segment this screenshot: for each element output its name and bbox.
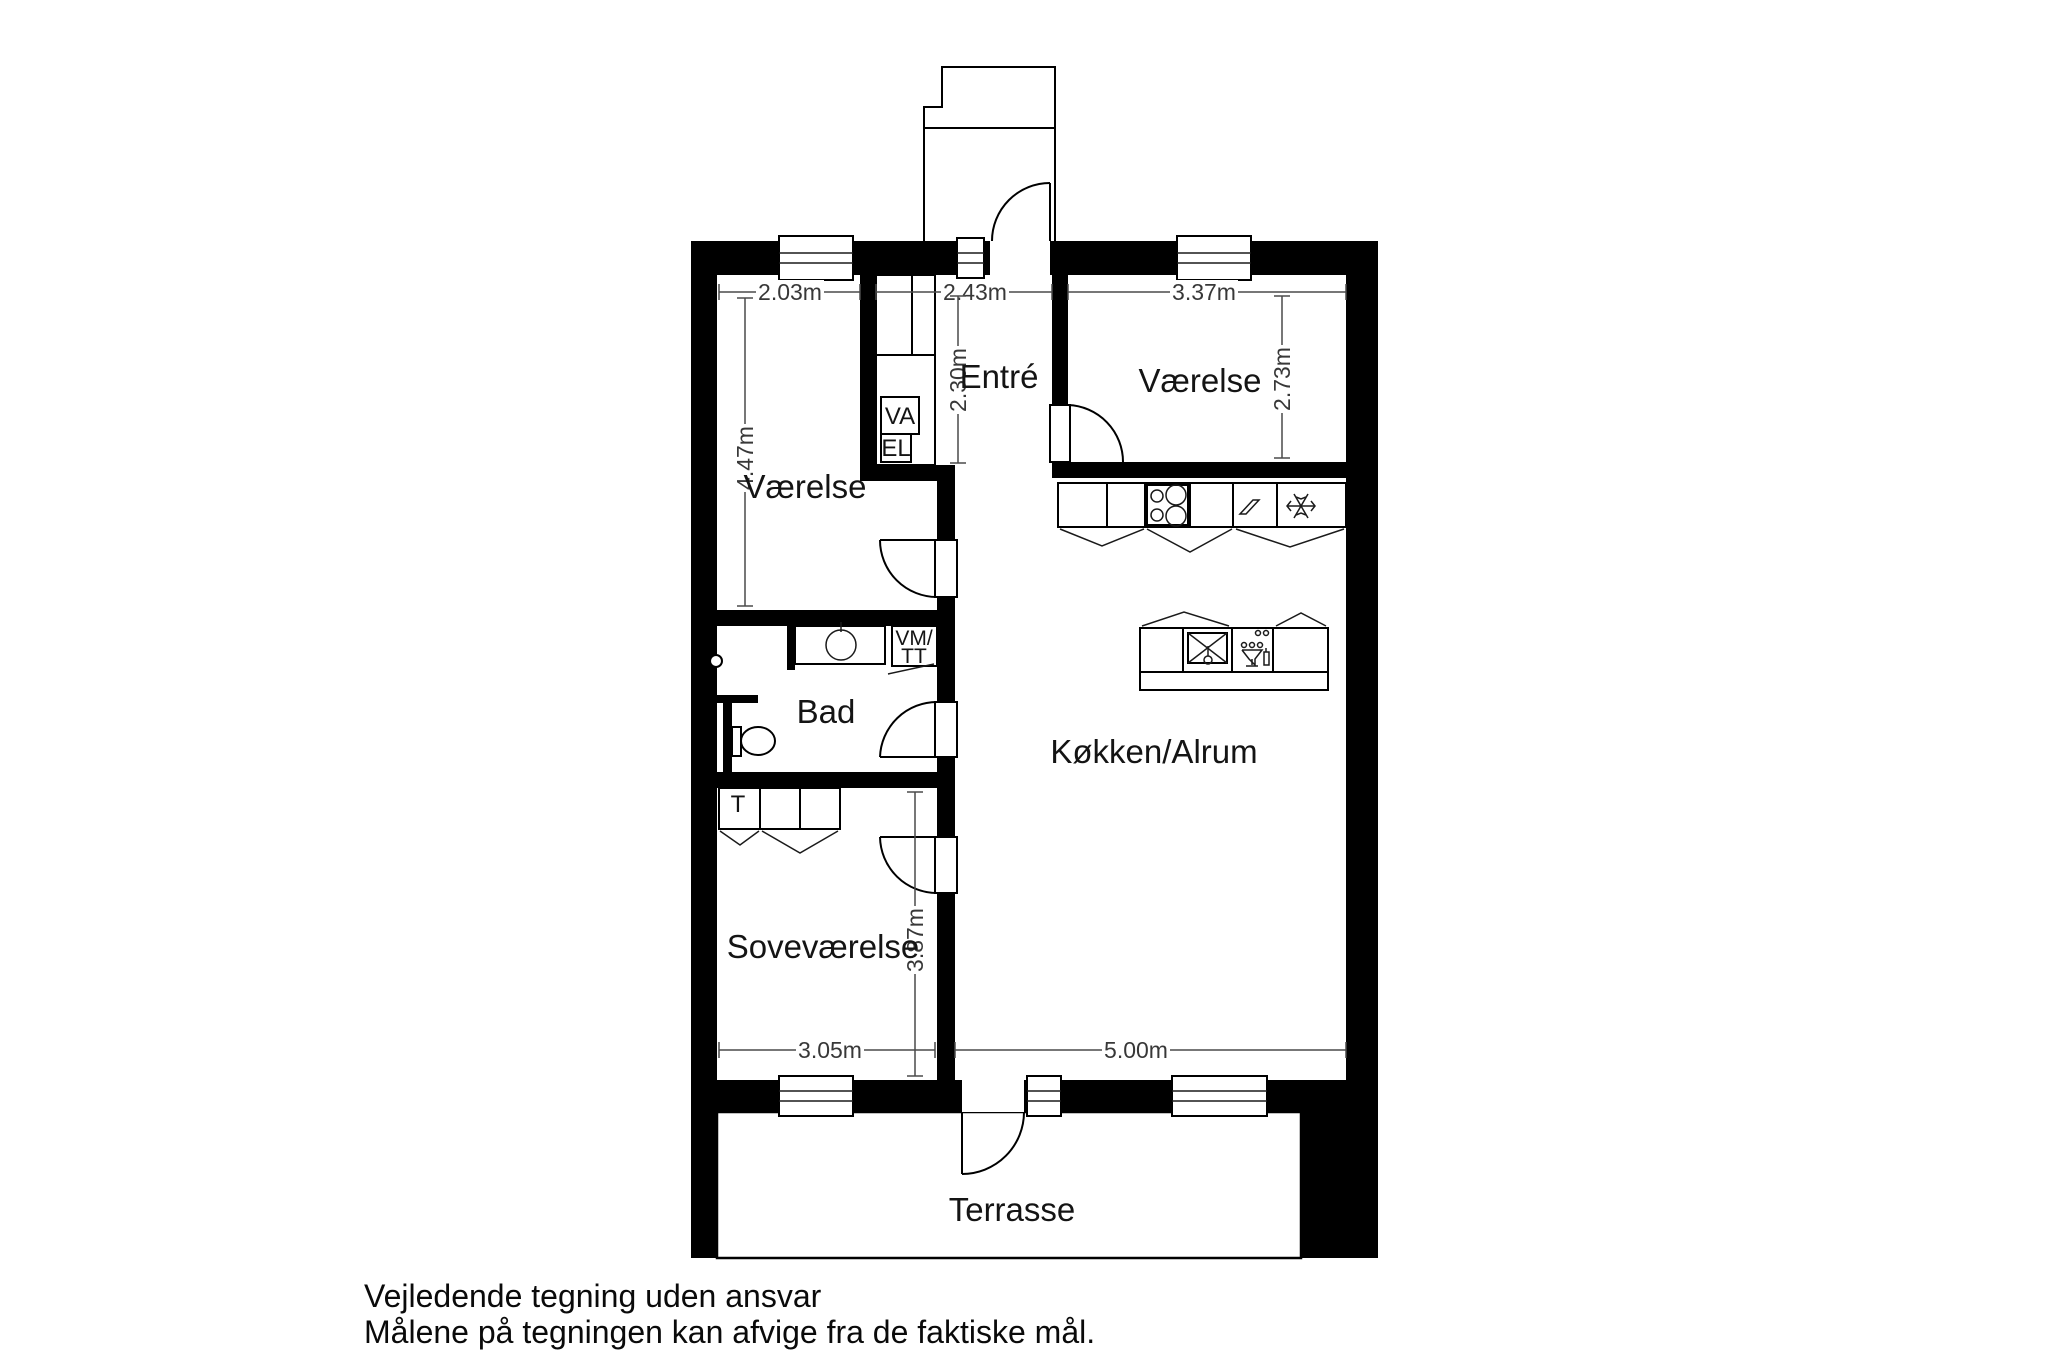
vaerelse-left-label: Værelse — [744, 468, 867, 505]
zigzag-icon — [1240, 500, 1259, 514]
vaerelse-left-door — [880, 540, 957, 597]
room-labels: Værelse Værelse Entré Bad Soveværelse Kø… — [727, 358, 1262, 965]
toilet-icon — [732, 727, 775, 756]
dishwasher-icon — [1242, 631, 1270, 667]
floor-plan-svg: Terrasse — [0, 0, 2048, 1360]
terrace-area: Terrasse — [717, 1112, 1301, 1258]
window-entrance-sidelight — [957, 238, 984, 278]
svg-text:2.73m: 2.73m — [1269, 347, 1295, 411]
floor-plan-page: Terrasse — [0, 0, 2048, 1360]
entrance-door — [990, 183, 1050, 275]
window-bottom-middle — [1027, 1076, 1061, 1116]
svg-text:3.37m: 3.37m — [1172, 279, 1236, 305]
snowflake-icon — [1287, 494, 1315, 518]
entrance-porch-outline — [924, 67, 1055, 241]
footer-disclaimer: Vejledende tegning uden ansvar Målene på… — [364, 1278, 1095, 1350]
bad-label: Bad — [797, 693, 856, 730]
terrasse-label: Terrasse — [949, 1191, 1076, 1228]
window-top-right — [1177, 236, 1251, 280]
window-bottom-left — [779, 1076, 853, 1116]
doors — [880, 183, 1123, 1174]
kokken-alrum-label: Køkken/Alrum — [1050, 733, 1257, 770]
window-top-left — [779, 236, 853, 280]
sovevaerelse-label: Soveværelse — [727, 928, 920, 965]
kitchen-island — [1140, 612, 1328, 690]
tt-label: TT — [901, 645, 927, 668]
dim-vaerelse-right-width: 3.37m — [1068, 279, 1346, 305]
island-sink-icon — [1188, 633, 1227, 664]
dim-vaerelse-right-depth: 2.73m — [1269, 296, 1295, 458]
svg-text:3.05m: 3.05m — [798, 1037, 862, 1063]
terrace-right-wall — [1301, 1112, 1378, 1258]
washbasin-icon — [795, 622, 885, 664]
footer-line-2: Målene på tegningen kan afvige fra de fa… — [364, 1314, 1095, 1350]
window-bottom-right — [1172, 1076, 1267, 1116]
shower-head-icon — [705, 655, 722, 667]
svg-text:2.43m: 2.43m — [943, 279, 1007, 305]
svg-text:2.03m: 2.03m — [758, 279, 822, 305]
dim-sovevaerelse-width: 3.05m — [719, 1037, 935, 1063]
sovevaerelse-door — [880, 837, 957, 893]
stove-icon — [1147, 485, 1188, 526]
va-label: VA — [885, 403, 915, 430]
vm-tt-closet: VM/ TT — [888, 626, 937, 674]
svg-text:5.00m: 5.00m — [1104, 1037, 1168, 1063]
entre-label: Entré — [960, 358, 1039, 395]
dim-entre-width: 2.43m — [876, 279, 1052, 305]
entre-closet: VA EL — [876, 275, 935, 465]
footer-line-1: Vejledende tegning uden ansvar — [364, 1278, 822, 1314]
t-label: T — [731, 791, 746, 818]
vaerelse-right-label: Værelse — [1139, 362, 1262, 399]
el-label: EL — [881, 435, 910, 462]
bad-door — [880, 702, 957, 757]
bathroom-fixtures: VM/ TT — [705, 622, 937, 756]
wardrobe-cabinets: T — [719, 788, 840, 853]
right-wall — [1346, 241, 1378, 1113]
kitchen-counter — [1058, 483, 1346, 552]
dim-vaerelse-left-depth: 4.47m — [732, 298, 758, 606]
dim-kokken-width: 5.00m — [955, 1037, 1346, 1063]
dim-vaerelse-left-width: 2.03m — [719, 279, 860, 305]
vaerelse-right-door — [1050, 405, 1123, 462]
